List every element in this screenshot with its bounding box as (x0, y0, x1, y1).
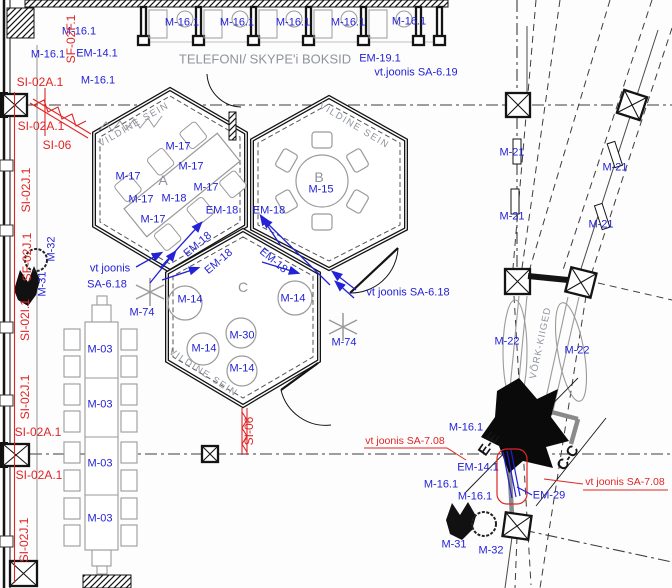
column (505, 269, 530, 294)
bottom-wall (83, 575, 131, 588)
plant-m74-right (329, 313, 357, 341)
plan-drawing (0, 0, 672, 588)
beam (528, 276, 568, 280)
table-group-m03 (64, 296, 137, 574)
column (502, 512, 531, 539)
right-structure (446, 90, 647, 540)
column (506, 93, 530, 117)
section-cut-marker (481, 378, 569, 473)
column (617, 90, 647, 120)
door-leaf-gap (229, 112, 236, 140)
plant-m31-m32-left (14, 249, 47, 306)
column (202, 446, 218, 462)
booth-doors (149, 10, 412, 38)
floor-plan: M-16.1M-16.1M-16.1M-16.1M-16.1M-16.1M-16… (0, 0, 672, 588)
phone-booths (25, 0, 448, 45)
insulation-si06-c (242, 408, 247, 455)
corner-column (7, 8, 34, 38)
column (565, 267, 596, 298)
plant-m31-m32-right (446, 502, 496, 540)
leader-sa708-right (544, 479, 668, 490)
column (3, 444, 29, 466)
